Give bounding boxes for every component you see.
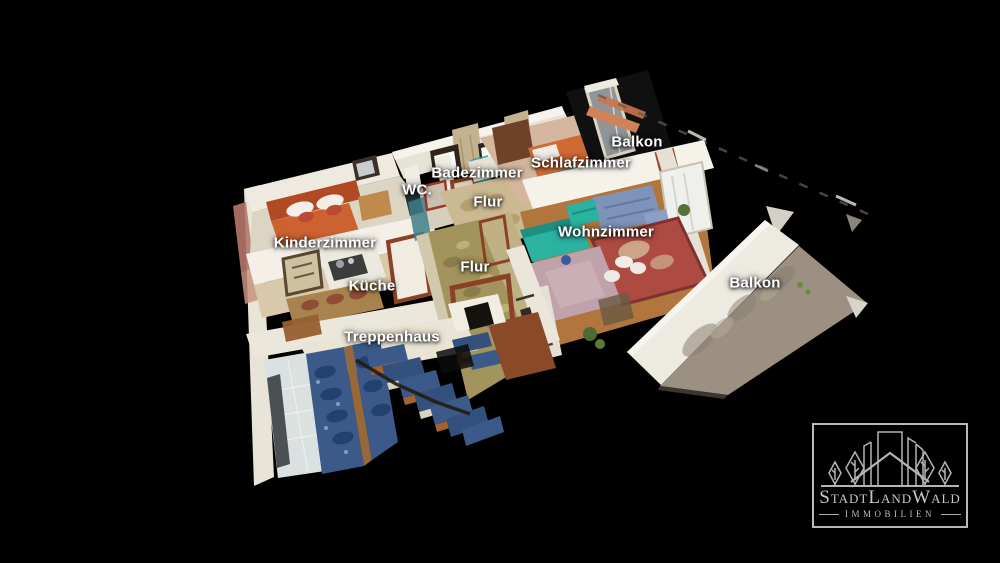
- brand-logo-graphic: [815, 428, 965, 490]
- room-label-schlafzimmer: Schlafzimmer: [531, 154, 631, 171]
- dollhouse-viewport[interactable]: BalkonSchlafzimmerBadezimmerWC.FlurWohnz…: [0, 0, 1000, 563]
- room-label-treppenhaus: Treppenhaus: [344, 328, 440, 345]
- brand-watermark: StadtLandWald IMMOBILIEN: [812, 423, 968, 528]
- room-label-wc: WC.: [402, 181, 432, 198]
- subtitle-dash-right: [941, 514, 961, 515]
- brand-subtitle: IMMOBILIEN: [845, 510, 935, 519]
- room-label-flur-top: Flur: [473, 193, 502, 210]
- room-label-badezimmer: Badezimmer: [431, 164, 522, 181]
- room-label-flur: Flur: [460, 258, 489, 275]
- subtitle-dash-left: [819, 514, 839, 515]
- room-label-wohnzimmer: Wohnzimmer: [558, 223, 654, 240]
- room-label-kinderzimmer: Kinderzimmer: [274, 234, 376, 251]
- room-label-balkon-top: Balkon: [611, 133, 662, 150]
- brand-subtitle-row: IMMOBILIEN: [819, 510, 961, 519]
- room-label-balkon: Balkon: [729, 274, 780, 291]
- room-label-kueche: Küche: [349, 277, 396, 294]
- brand-name: StadtLandWald: [819, 488, 961, 507]
